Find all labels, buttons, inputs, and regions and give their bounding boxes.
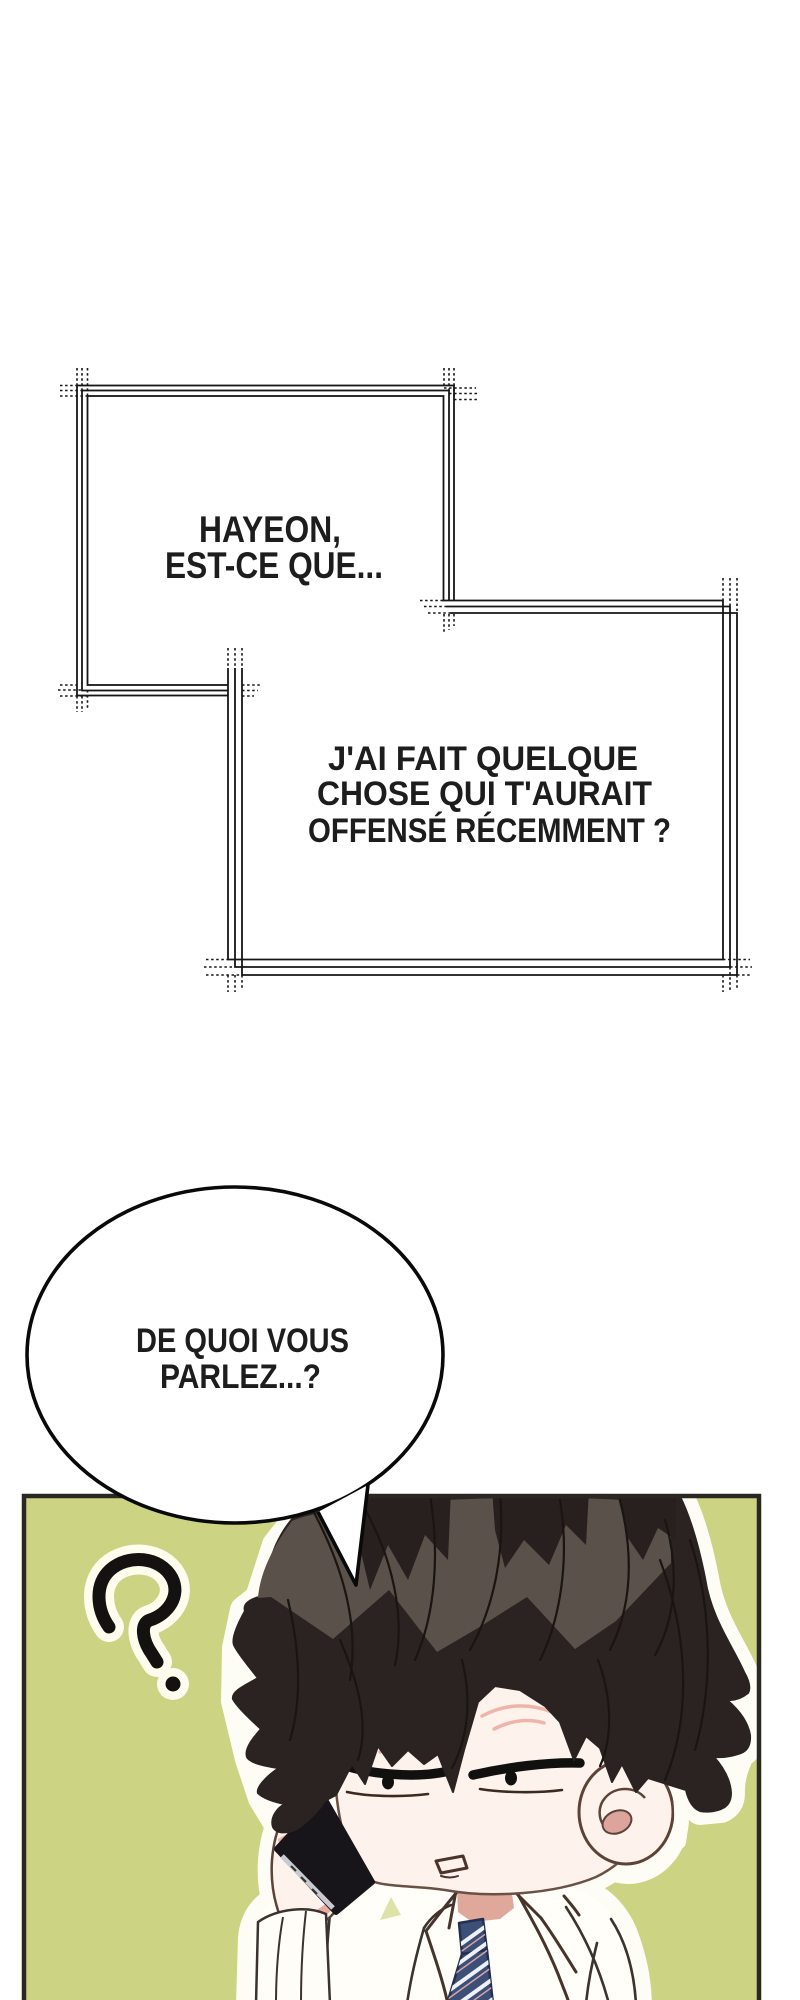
svg-text:EST-CE QUE...: EST-CE QUE... xyxy=(165,545,383,586)
svg-text:PARLEZ...?: PARLEZ...? xyxy=(160,1358,321,1396)
svg-text:J'AI FAIT QUELQUE: J'AI FAIT QUELQUE xyxy=(328,740,638,778)
svg-text:OFFENSÉ RÉCEMMENT ?: OFFENSÉ RÉCEMMENT ? xyxy=(308,810,671,850)
svg-text:DE QUOI VOUS: DE QUOI VOUS xyxy=(136,1322,349,1360)
svg-text:CHOSE QUI T'AURAIT: CHOSE QUI T'AURAIT xyxy=(317,775,652,813)
svg-text:HAYEON,: HAYEON, xyxy=(199,509,341,550)
